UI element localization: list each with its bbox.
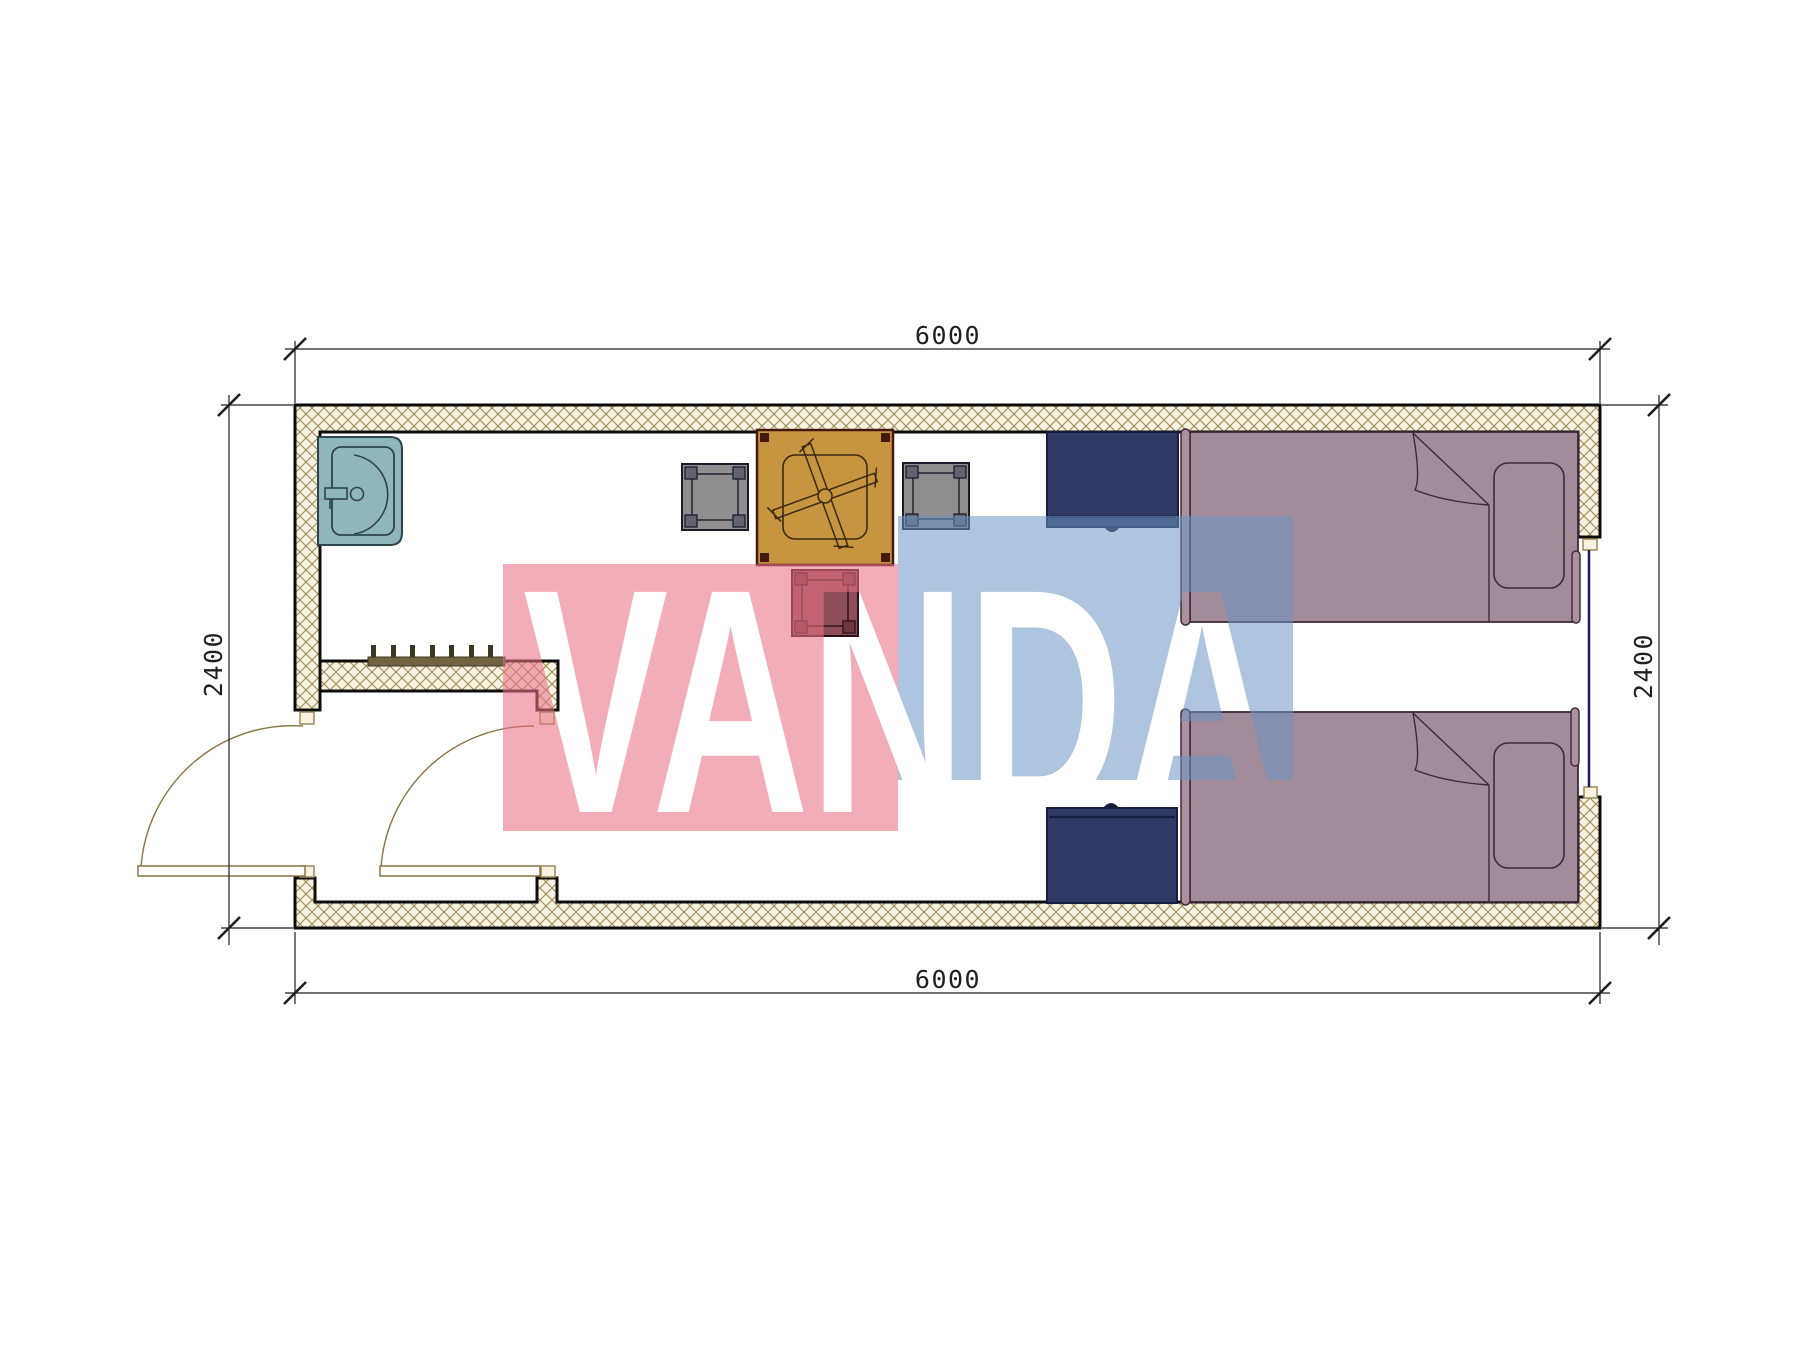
jamb <box>300 712 314 724</box>
jamb <box>1583 539 1597 550</box>
stool-icon <box>682 464 748 530</box>
floor-plan-drawing: VANDA <box>0 0 1800 1350</box>
watermark-pink-panel <box>503 564 898 831</box>
dim-label-left: 2400 <box>199 631 228 697</box>
wash-basin-icon <box>318 437 402 545</box>
watermark-blue-panel <box>898 516 1293 780</box>
dim-label-right: 2400 <box>1629 633 1658 699</box>
jamb <box>1584 787 1597 798</box>
doors <box>138 726 540 876</box>
jamb <box>541 866 555 877</box>
watermark <box>503 516 1293 831</box>
bedside-cabinet-icon <box>1047 803 1177 903</box>
dim-left <box>218 394 293 945</box>
coat-rack-icon <box>368 645 505 666</box>
dim-label-top: 6000 <box>915 321 981 350</box>
entry-door-icon <box>138 726 305 876</box>
dim-label-bottom: 6000 <box>915 965 981 994</box>
table-icon <box>757 430 893 565</box>
floor-plan-canvas: VANDA <box>0 0 1800 1350</box>
